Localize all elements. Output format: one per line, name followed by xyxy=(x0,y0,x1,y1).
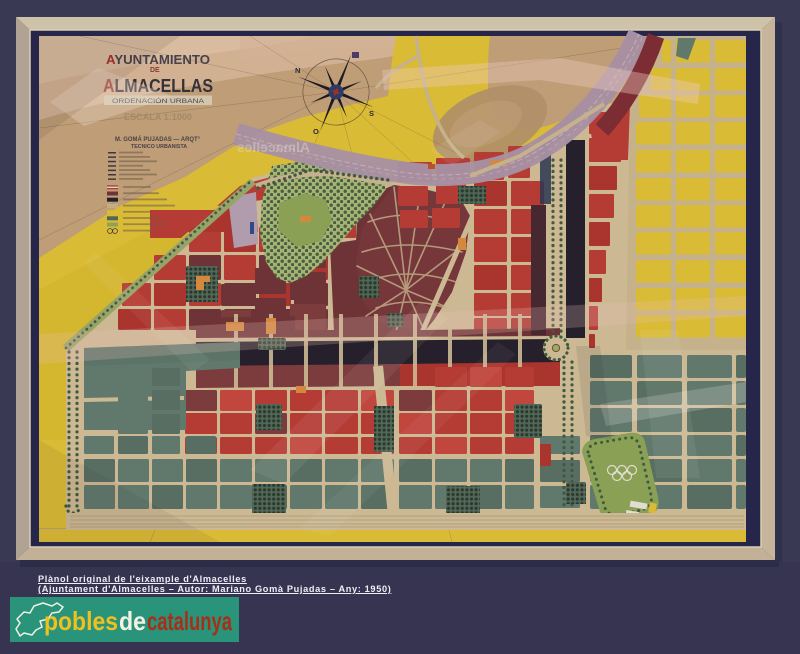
svg-text:pobles: pobles xyxy=(44,606,118,636)
svg-text:de: de xyxy=(119,606,146,636)
svg-text:catalunya: catalunya xyxy=(147,606,232,636)
